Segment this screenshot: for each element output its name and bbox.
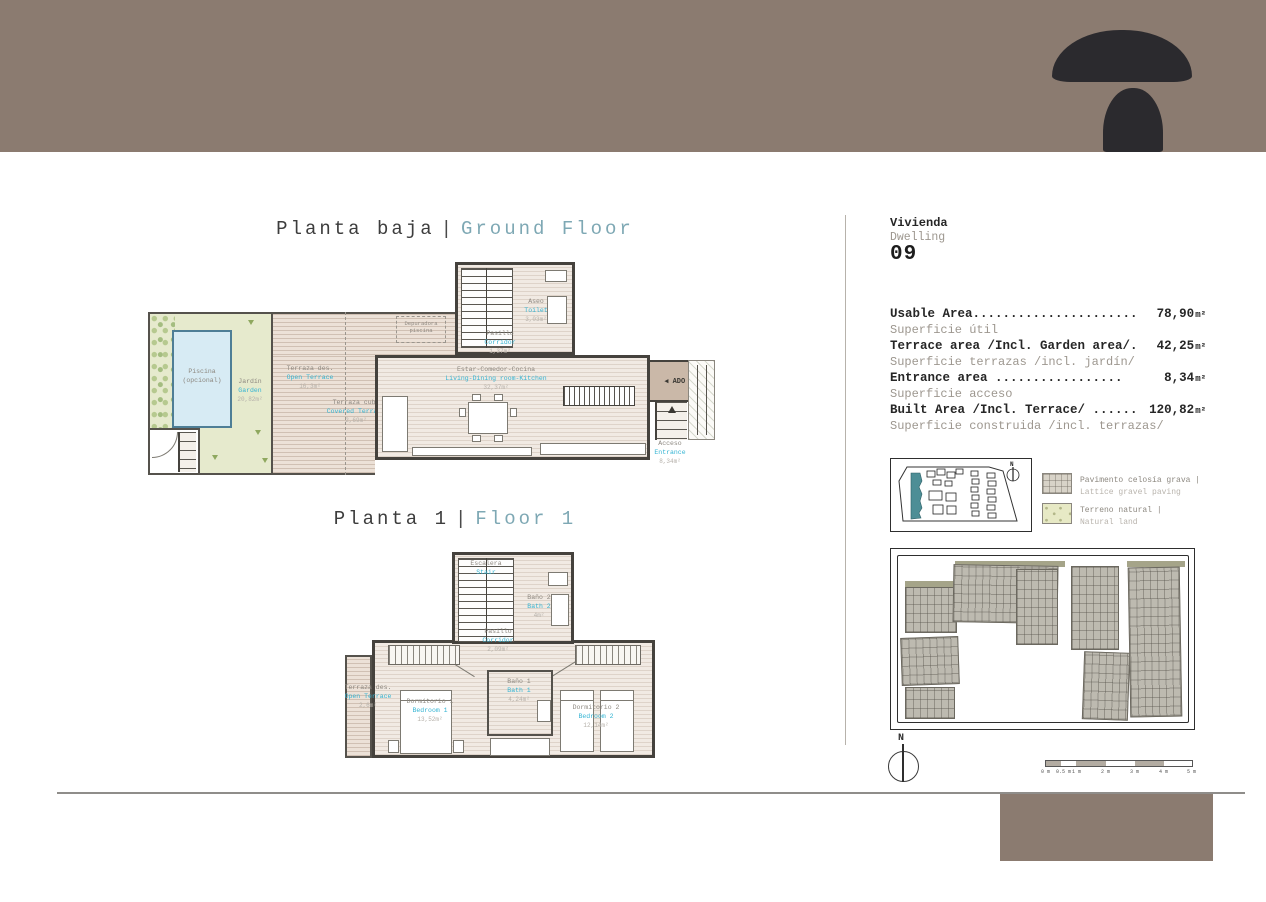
- area-value: 8,34: [1164, 371, 1194, 385]
- dorm1-es: Dormitorio 1: [394, 698, 466, 707]
- scale-tick: 2 m: [1101, 769, 1110, 775]
- escalera-en: Stair: [464, 569, 508, 578]
- scale-tick: 5 m: [1187, 769, 1196, 775]
- ground-floor-title-es: Planta baja: [276, 218, 434, 240]
- plant-icon: [262, 458, 268, 463]
- bath1-shower: [490, 738, 550, 756]
- area-value: 78,90: [1157, 307, 1195, 321]
- area-label: Entrance area .................: [890, 371, 1164, 385]
- pasillo-f1-en: Corridor: [476, 637, 520, 646]
- scale-segment: [1106, 761, 1135, 766]
- area-label: Usable Area......................: [890, 307, 1157, 321]
- acceso-area: 8,34m²: [646, 458, 694, 466]
- terrace-boundary-dashed-line: [345, 312, 346, 475]
- north-label: N: [898, 733, 904, 744]
- site-building-cluster: [1128, 567, 1183, 718]
- chair: [459, 408, 466, 417]
- compass-needle: [902, 744, 904, 782]
- scale-segment: [1164, 761, 1192, 766]
- area-unit: m²: [1195, 406, 1206, 416]
- title-separator: |: [449, 508, 475, 530]
- tree-icon: [706, 365, 707, 435]
- scale-tick: 0 m: [1041, 769, 1050, 775]
- dorm2-es: Dormitorio 2: [556, 704, 636, 713]
- room-label-bano2: Baño 2 Bath 2 4m²: [516, 594, 562, 620]
- depuradora-line1: Depuradora: [397, 320, 445, 327]
- room-label-terraza-f1: Terraza des. Open Terrace 2,6m²: [338, 684, 398, 710]
- legend-swatch-natural: [1042, 503, 1072, 524]
- room-label-pasillo-f1: Pasillo Corridor 2,09m²: [476, 628, 520, 654]
- area-row-entrance: Entrance area ................. 8,34 m²: [890, 371, 1206, 385]
- area-unit: m²: [1195, 342, 1206, 352]
- bano2-en: Bath 2: [516, 603, 562, 612]
- bano2-area: 4m²: [516, 612, 562, 620]
- bano1-en: Bath 1: [494, 687, 544, 696]
- scale-segment: [1076, 761, 1106, 766]
- area-unit: m²: [1195, 310, 1206, 320]
- room-label-dorm2: Dormitorio 2 Bedroom 2 12,14m²: [556, 704, 636, 730]
- minimap-north-label: N: [1010, 461, 1014, 468]
- title-separator: |: [435, 218, 461, 240]
- dorm2-en: Bedroom 2: [556, 713, 636, 722]
- scale-tick: 3 m: [1130, 769, 1139, 775]
- terraza-des-en: Open Terrace: [278, 374, 342, 383]
- dwelling-number: 09: [890, 243, 917, 266]
- scale-tick: 0.5 m: [1056, 769, 1071, 775]
- site-building-cluster: [1082, 651, 1130, 721]
- acceso-en: Entrance: [646, 449, 694, 458]
- wardrobe: [575, 645, 641, 665]
- room-label-estar: Estar-Comedor-Cocina Living-Dining room-…: [428, 366, 564, 392]
- room-label-aseo: Aseo Toilet 3,03m²: [512, 298, 560, 324]
- tree-icon: [697, 365, 698, 435]
- terraza-des-area: 16,3m²: [278, 383, 342, 391]
- entrance-landscaping: [688, 360, 715, 440]
- plant-icon: [255, 430, 261, 435]
- bed-pillow-line: [600, 700, 634, 701]
- area-row-terrace: Terrace area /Incl. Garden area/. 42,25 …: [890, 339, 1206, 353]
- up-arrow-icon: [668, 406, 676, 413]
- site-plan: [890, 548, 1195, 730]
- plant-icon: [248, 320, 254, 325]
- room-label-acceso: Acceso Entrance 8,34m²: [646, 440, 694, 466]
- area-row-built-es: Superficie construida /incl. terrazas/: [890, 419, 1164, 433]
- area-value: 42,25: [1157, 339, 1195, 353]
- room-label-pasillo-gf: Pasillo Corridor 1,37m²: [478, 330, 522, 356]
- site-building-cluster: [905, 587, 957, 633]
- site-building-cluster: [1016, 569, 1058, 645]
- aseo-en: Toilet: [512, 307, 560, 316]
- escalera-es: Escalera: [464, 560, 508, 569]
- area-row-entrance-es: Superficie acceso: [890, 387, 1012, 401]
- ground-floor-title: Planta baja|Ground Floor: [145, 218, 765, 240]
- bano2-es: Baño 2: [516, 594, 562, 603]
- legend-swatch-gravel: [1042, 473, 1072, 494]
- ground-floor-title-en: Ground Floor: [461, 218, 634, 240]
- scale-segment: [1061, 761, 1076, 766]
- area-value: 120,82: [1149, 403, 1194, 417]
- footer-brown-block: [1000, 794, 1213, 861]
- sofa: [382, 396, 408, 452]
- area-row-usable: Usable Area...................... 78,90 …: [890, 307, 1206, 321]
- room-label-terraza-des: Terraza des. Open Terrace 16,3m²: [278, 365, 342, 391]
- terraza-f1-es: Terraza des.: [338, 684, 398, 693]
- nightstand: [388, 740, 399, 753]
- locator-minimap-drawing: N: [891, 459, 1030, 530]
- pasillo-gf-en: Corridor: [478, 339, 522, 348]
- area-row-usable-es: Superficie útil: [890, 323, 998, 337]
- area-row-built: Built Area /Incl. Terrace/ ...... 120,82…: [890, 403, 1206, 417]
- garden-steps: [178, 432, 196, 472]
- legend-gravel-en: Lattice gravel paving: [1080, 487, 1181, 499]
- pasillo-f1-es: Pasillo: [476, 628, 520, 637]
- scale-tick: 4 m: [1159, 769, 1168, 775]
- locator-minimap: N: [890, 458, 1032, 532]
- terraza-f1-area: 2,6m²: [338, 702, 398, 710]
- aseo-area: 3,03m²: [512, 316, 560, 324]
- site-building-cluster: [900, 636, 960, 686]
- piscina-es: Piscina: [166, 368, 238, 377]
- chair: [472, 435, 481, 442]
- dining-table: [468, 402, 508, 434]
- toilet-sink: [545, 270, 567, 282]
- scale-segment: [1135, 761, 1164, 766]
- kitchen-counter: [540, 443, 646, 455]
- chair: [472, 394, 481, 401]
- bath1-wc: [537, 700, 551, 722]
- wardrobe: [388, 645, 460, 665]
- pasillo-f1-area: 2,09m²: [476, 646, 520, 654]
- bano1-es: Baño 1: [494, 678, 544, 687]
- scale-tick: 1 m: [1072, 769, 1081, 775]
- plan-sheet: Planta baja|Ground Floor Piscina (opcion…: [0, 0, 1266, 902]
- dorm1-en: Bedroom 1: [394, 707, 466, 716]
- bed-pillow-line: [560, 700, 594, 701]
- terraza-f1-en: Open Terrace: [338, 693, 398, 702]
- floor1-title-en: Floor 1: [475, 508, 576, 530]
- nightstand: [453, 740, 464, 753]
- pool-filter-box: Depuradora piscina: [396, 316, 446, 343]
- bench-counter: [412, 447, 532, 456]
- depuradora-line2: piscina: [397, 327, 445, 334]
- estar-area: 32,37m²: [428, 384, 564, 392]
- dorm1-area: 13,52m²: [394, 716, 466, 724]
- room-label-escalera: Escalera Stair: [464, 560, 508, 578]
- floor1-title-es: Planta 1: [334, 508, 449, 530]
- plant-icon: [212, 455, 218, 460]
- chair: [494, 394, 503, 401]
- site-building-cluster: [1071, 566, 1119, 650]
- acceso-es: Acceso: [646, 440, 694, 449]
- estar-en: Living-Dining room-Kitchen: [428, 375, 564, 384]
- scale-segment: [1046, 761, 1061, 766]
- room-label-dorm1: Dormitorio 1 Bedroom 1 13,52m²: [394, 698, 466, 724]
- chair: [510, 408, 517, 417]
- dwelling-label-es: Vivienda: [890, 216, 948, 230]
- site-building-cluster: [905, 687, 955, 719]
- floor1-title: Planta 1|Floor 1: [145, 508, 765, 530]
- legend-natural-es: Terreno natural |: [1080, 505, 1162, 517]
- estar-es: Estar-Comedor-Cocina: [428, 366, 564, 375]
- legend-natural-en: Natural land: [1080, 517, 1138, 529]
- pasillo-gf-es: Pasillo: [478, 330, 522, 339]
- vertical-divider: [845, 215, 846, 745]
- area-label: Terrace area /Incl. Garden area/.: [890, 339, 1157, 353]
- dorm2-area: 12,14m²: [556, 722, 636, 730]
- area-label: Built Area /Incl. Terrace/ ......: [890, 403, 1149, 417]
- area-unit: m²: [1195, 374, 1206, 384]
- bath2-sink: [548, 572, 568, 586]
- aseo-es: Aseo: [512, 298, 560, 307]
- terraza-des-es: Terraza des.: [278, 365, 342, 374]
- scale-bar: [1045, 760, 1193, 767]
- area-row-terrace-es: Superficie terrazas /incl. jardín/: [890, 355, 1135, 369]
- chair: [494, 435, 503, 442]
- kitchen-island: [563, 386, 635, 406]
- legend-gravel-es: Pavimento celosía grava |: [1080, 475, 1200, 487]
